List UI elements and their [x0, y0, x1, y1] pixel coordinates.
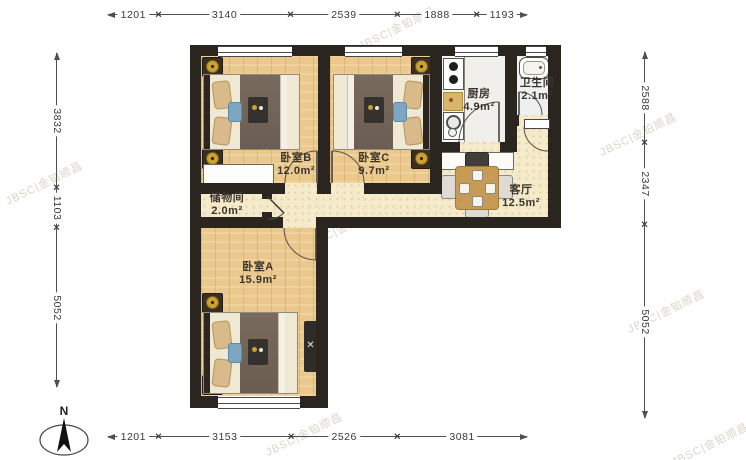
- window: [526, 46, 546, 57]
- arrow-icon: [642, 411, 648, 419]
- arrow-icon: [520, 12, 528, 18]
- room-area: 12.0m²: [259, 165, 333, 178]
- pillow-blue: [228, 102, 242, 122]
- room-label-bedroom-a: 卧室A 15.9m²: [221, 261, 295, 287]
- entry-door-threshold: [524, 119, 550, 129]
- bathtub-inner: [523, 61, 545, 75]
- pillow-blue: [393, 102, 407, 122]
- wall: [430, 56, 442, 183]
- arrow-icon: [107, 12, 115, 18]
- bed-headboard: [423, 75, 429, 149]
- wall: [317, 183, 331, 194]
- bed-headboard: [204, 313, 210, 393]
- tick-icon: [641, 138, 649, 149]
- arrow-icon: [642, 51, 648, 59]
- dimension-value: 1103: [51, 193, 63, 224]
- arrow-icon: [520, 434, 528, 440]
- wall: [505, 115, 519, 126]
- watermark: JBSC|金铂顺昌: [669, 418, 746, 460]
- wall: [190, 396, 218, 408]
- lamp-icon: [206, 296, 219, 309]
- kitchen-sink-icon: [443, 112, 464, 140]
- dimension-value: 3153: [209, 431, 240, 443]
- watermark: JBSC|金铂顺昌: [597, 108, 679, 159]
- wall: [364, 183, 442, 194]
- room-area: 4.9m²: [444, 101, 514, 114]
- arrow-icon: [54, 380, 60, 388]
- dimension-value: 1201: [118, 431, 149, 443]
- room-name: 卧室A: [221, 261, 295, 274]
- dimension-line-top: 1201 3140 2539 1888 1193: [108, 9, 527, 21]
- room-name: 卧室B: [259, 152, 333, 165]
- room-area: 12.5m²: [486, 197, 556, 210]
- dimension-rule: [108, 14, 527, 15]
- dimension-value: 5052: [51, 292, 63, 323]
- tick-icon: [53, 223, 61, 234]
- dimension-value: 2347: [639, 168, 651, 199]
- bed-tray: [248, 339, 268, 365]
- room-area: 2.0m²: [192, 205, 262, 218]
- arrow-icon: [54, 52, 60, 60]
- bed-tray: [248, 97, 268, 123]
- dimension-value: 3081: [446, 431, 477, 443]
- dimension-value: 1201: [118, 9, 149, 21]
- wall: [500, 142, 505, 152]
- nightstand: [411, 149, 432, 169]
- room-area: 2.1m²: [506, 90, 568, 103]
- wall: [430, 142, 460, 152]
- dimension-line-right: 2588 2347 5052: [639, 52, 651, 418]
- dimension-value: 2539: [328, 9, 359, 21]
- lamp-icon: [415, 152, 428, 165]
- watermark: JBSC|金铂顺昌: [3, 157, 85, 208]
- bathtub-icon: [519, 57, 549, 79]
- room-label-kitchen: 厨房 4.9m²: [444, 88, 514, 114]
- plate: [472, 196, 483, 207]
- tick-icon: [394, 9, 402, 20]
- bed-fold: [280, 75, 287, 149]
- nightstand: [202, 293, 223, 313]
- room-name: 客厅: [486, 184, 556, 197]
- tick-icon: [155, 9, 163, 20]
- tick-icon: [287, 9, 295, 20]
- window: [345, 46, 402, 57]
- wall: [262, 194, 272, 199]
- compass-arrow-icon: [57, 418, 71, 452]
- dimension-value: 3832: [51, 105, 63, 136]
- dimension-value: 2526: [329, 431, 360, 443]
- dimension-line-left: 3832 1103 5052: [51, 53, 63, 387]
- lamp-icon: [206, 60, 219, 73]
- bed-fold: [278, 313, 285, 393]
- burner-icon: [449, 62, 458, 71]
- wall: [300, 396, 328, 408]
- room-area: 15.9m²: [221, 274, 295, 287]
- plate: [459, 183, 470, 194]
- dimension-value: 2588: [639, 82, 651, 113]
- bed-bedroom-b: [203, 74, 300, 150]
- room-label-storage: 储物间 2.0m²: [192, 192, 262, 218]
- room-name: 卫生间: [506, 77, 568, 90]
- bed-tray: [364, 97, 384, 123]
- wall: [316, 217, 561, 228]
- dimension-value: 5052: [639, 306, 651, 337]
- dimension-value: 1193: [487, 9, 518, 21]
- dimension-value: 1888: [421, 9, 452, 21]
- room-name: 储物间: [192, 192, 262, 205]
- bed-bedroom-a: [203, 312, 298, 394]
- floor-plan: JBSC|金铂顺昌 JBSC|金铂顺昌 JBSC|金铂顺昌 JBSC|金铂顺昌 …: [0, 0, 746, 460]
- wall: [316, 228, 328, 408]
- bed-bedroom-c: [333, 74, 430, 150]
- room-label-bedroom-b: 卧室B 12.0m²: [259, 152, 333, 178]
- plate: [472, 170, 483, 181]
- window: [455, 46, 498, 57]
- wall: [190, 217, 283, 228]
- stove-icon: [443, 58, 464, 90]
- watermark: JBSC|金铂顺昌: [625, 285, 707, 336]
- tick-icon: [394, 431, 402, 442]
- tick-icon: [155, 431, 163, 442]
- bed-headboard: [204, 75, 210, 149]
- room-label-bedroom-c: 卧室C 9.7m²: [337, 152, 411, 178]
- window: [218, 397, 300, 409]
- dimension-value: 3140: [209, 9, 240, 21]
- compass: N: [34, 402, 94, 458]
- arrow-icon: [107, 434, 115, 440]
- room-label-livingroom: 客厅 12.5m²: [486, 184, 556, 210]
- tick-icon: [641, 220, 649, 231]
- tick-icon: [473, 9, 481, 20]
- compass-north-label: N: [60, 404, 69, 418]
- window: [218, 46, 292, 57]
- room-name: 卧室C: [337, 152, 411, 165]
- tick-icon: [287, 431, 295, 442]
- room-area: 9.7m²: [337, 165, 411, 178]
- pillow-blue: [228, 343, 242, 363]
- dish: [448, 128, 457, 137]
- room-name: 厨房: [444, 88, 514, 101]
- room-label-bathroom: 卫生间 2.1m²: [506, 77, 568, 103]
- lamp-icon: [415, 60, 428, 73]
- burner-icon: [449, 75, 458, 84]
- bed-fold: [347, 75, 354, 149]
- dimension-line-bottom: 1201 3153 2526 3081: [108, 431, 527, 443]
